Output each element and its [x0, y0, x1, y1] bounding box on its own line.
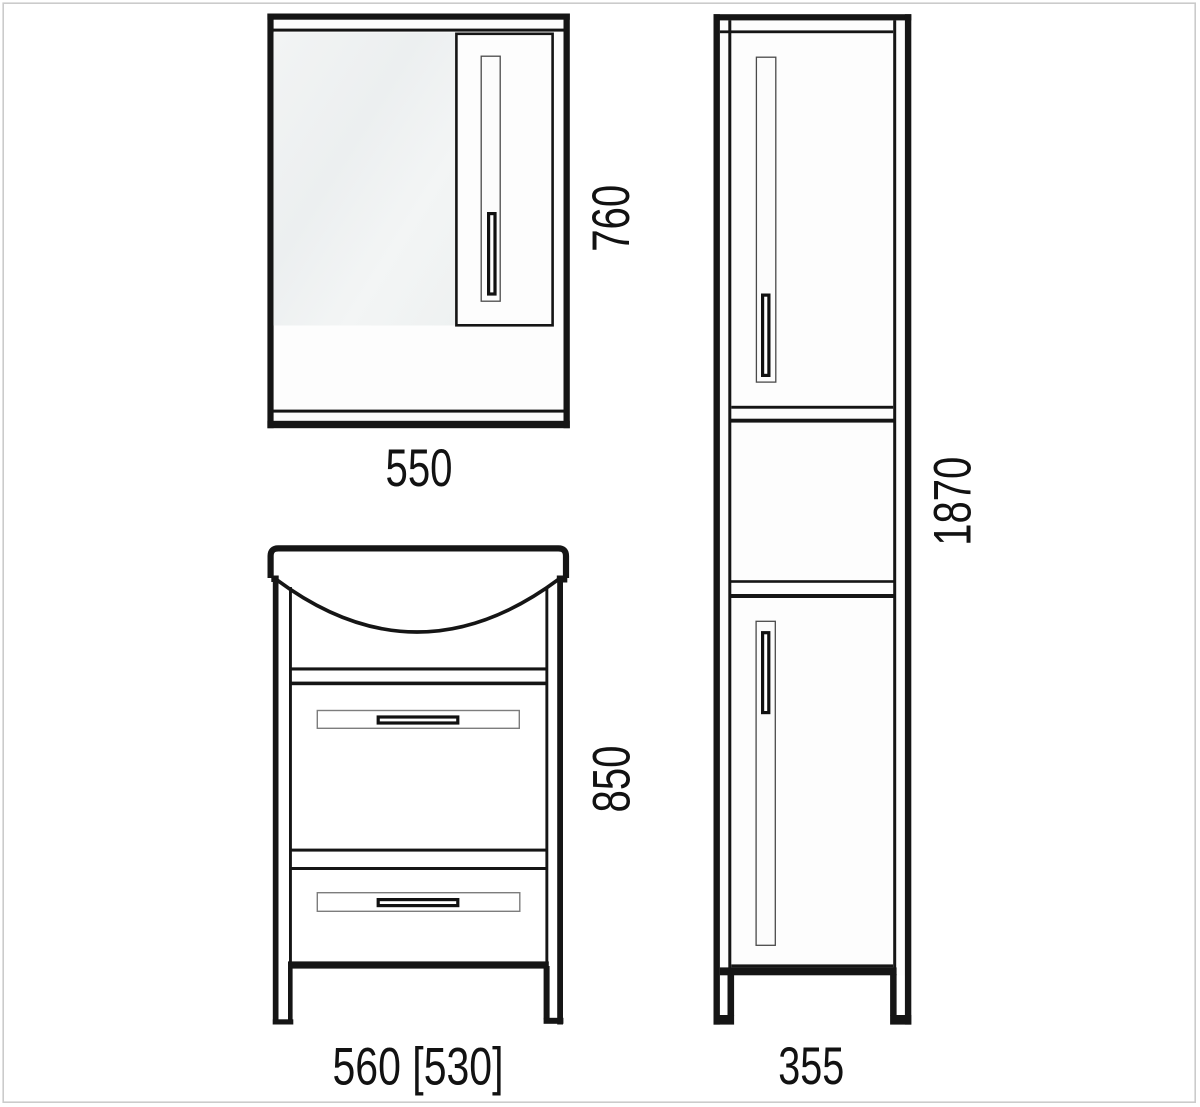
svg-text:1870: 1870: [924, 457, 983, 546]
svg-text:560 [530]: 560 [530]: [333, 1038, 504, 1097]
svg-text:760: 760: [582, 185, 641, 252]
svg-text:355: 355: [778, 1037, 844, 1096]
svg-text:850: 850: [583, 746, 642, 813]
svg-text:550: 550: [386, 439, 453, 498]
